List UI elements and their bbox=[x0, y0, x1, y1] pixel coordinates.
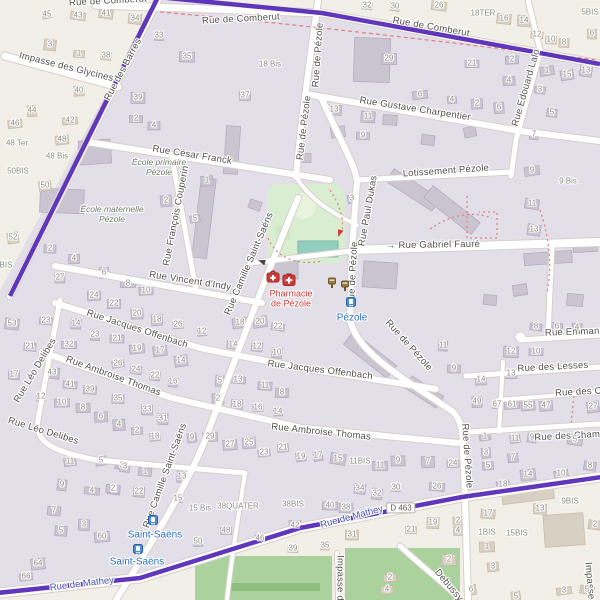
building bbox=[511, 591, 521, 600]
building bbox=[383, 574, 396, 582]
building bbox=[55, 526, 68, 537]
building bbox=[587, 29, 596, 39]
building bbox=[277, 443, 289, 452]
building bbox=[487, 562, 499, 572]
building bbox=[106, 484, 121, 493]
building bbox=[447, 460, 459, 468]
building bbox=[371, 488, 382, 500]
building bbox=[524, 165, 540, 176]
building bbox=[465, 60, 479, 67]
building bbox=[76, 403, 90, 412]
forest-area bbox=[195, 556, 332, 600]
building bbox=[547, 108, 558, 117]
building bbox=[39, 317, 53, 325]
building bbox=[258, 449, 271, 457]
building bbox=[479, 542, 494, 553]
building bbox=[497, 13, 512, 24]
building bbox=[193, 537, 203, 547]
building bbox=[354, 483, 366, 494]
building bbox=[64, 457, 77, 467]
building bbox=[382, 54, 397, 65]
building bbox=[253, 404, 263, 411]
building bbox=[179, 52, 194, 63]
building bbox=[168, 376, 178, 387]
building bbox=[128, 13, 142, 25]
building bbox=[391, 484, 401, 492]
building bbox=[160, 195, 172, 207]
building bbox=[545, 36, 556, 45]
building bbox=[84, 487, 100, 496]
building bbox=[44, 245, 56, 253]
building bbox=[63, 381, 78, 389]
building bbox=[527, 224, 541, 237]
building bbox=[567, 434, 583, 446]
building bbox=[130, 365, 142, 375]
building bbox=[94, 412, 108, 423]
building bbox=[74, 86, 85, 97]
building bbox=[463, 126, 477, 138]
building bbox=[313, 450, 323, 461]
building bbox=[383, 115, 398, 126]
building bbox=[362, 2, 373, 10]
building bbox=[529, 348, 543, 355]
building bbox=[512, 284, 527, 297]
building bbox=[90, 329, 99, 340]
building bbox=[112, 360, 125, 369]
building bbox=[471, 99, 483, 110]
building bbox=[197, 328, 207, 337]
building bbox=[534, 86, 546, 94]
building bbox=[442, 554, 457, 566]
building bbox=[295, 452, 306, 462]
map-canvas[interactable]: Rue de ComberutImpasse des GlycinesRue d… bbox=[0, 0, 600, 600]
building bbox=[429, 482, 445, 491]
building bbox=[431, 1, 447, 12]
building bbox=[131, 309, 143, 319]
building bbox=[527, 433, 537, 443]
building bbox=[242, 437, 256, 449]
building bbox=[107, 299, 120, 308]
building bbox=[47, 506, 61, 516]
building bbox=[524, 198, 539, 210]
building bbox=[133, 487, 145, 498]
building bbox=[509, 434, 520, 443]
building bbox=[258, 382, 272, 391]
building bbox=[503, 76, 515, 86]
building bbox=[139, 287, 153, 296]
building bbox=[113, 419, 126, 431]
building bbox=[503, 346, 519, 358]
building bbox=[482, 462, 494, 471]
building bbox=[27, 105, 37, 117]
building bbox=[362, 261, 398, 289]
building bbox=[438, 341, 448, 352]
building bbox=[273, 408, 282, 416]
building bbox=[539, 400, 553, 411]
building bbox=[38, 180, 51, 192]
building bbox=[583, 461, 596, 472]
map-base-layer bbox=[0, 0, 600, 600]
building bbox=[94, 531, 110, 542]
road bbox=[337, 553, 338, 600]
building bbox=[71, 319, 82, 330]
building bbox=[472, 396, 482, 407]
building bbox=[78, 519, 90, 531]
building bbox=[588, 520, 600, 531]
building bbox=[275, 388, 288, 397]
building bbox=[190, 215, 201, 223]
building bbox=[101, 52, 112, 61]
building bbox=[320, 542, 329, 550]
building bbox=[110, 335, 124, 343]
building bbox=[586, 401, 599, 413]
building bbox=[158, 413, 168, 424]
building bbox=[55, 273, 65, 283]
building bbox=[447, 96, 457, 104]
building bbox=[30, 558, 45, 570]
building bbox=[55, 135, 69, 146]
building bbox=[57, 479, 67, 491]
building bbox=[322, 502, 337, 511]
building bbox=[138, 467, 152, 477]
building bbox=[559, 38, 569, 47]
building bbox=[421, 456, 434, 467]
building bbox=[62, 117, 78, 125]
building bbox=[339, 503, 353, 512]
building bbox=[405, 526, 416, 533]
building bbox=[174, 355, 188, 368]
building bbox=[173, 321, 183, 329]
building bbox=[131, 92, 145, 103]
building bbox=[152, 345, 167, 357]
building bbox=[141, 405, 152, 415]
building bbox=[356, 132, 369, 140]
building bbox=[68, 254, 79, 263]
building bbox=[530, 323, 543, 331]
building bbox=[560, 69, 574, 81]
building bbox=[54, 399, 69, 407]
building bbox=[288, 545, 298, 552]
building bbox=[87, 291, 101, 301]
building bbox=[412, 90, 428, 100]
building bbox=[330, 452, 347, 465]
building bbox=[112, 394, 124, 404]
building bbox=[551, 322, 563, 331]
building bbox=[579, 585, 594, 595]
building bbox=[481, 509, 496, 519]
building bbox=[129, 344, 145, 355]
building bbox=[98, 9, 113, 20]
building bbox=[149, 371, 160, 381]
building bbox=[223, 440, 238, 451]
hedge-row bbox=[230, 583, 320, 591]
building bbox=[494, 102, 505, 114]
building bbox=[148, 122, 160, 130]
building bbox=[391, 456, 405, 466]
building bbox=[505, 56, 518, 64]
building bbox=[19, 573, 33, 582]
building bbox=[381, 585, 394, 594]
building bbox=[43, 39, 56, 51]
building bbox=[131, 427, 143, 435]
building bbox=[481, 448, 491, 459]
building bbox=[42, 11, 52, 19]
building bbox=[421, 134, 435, 146]
building bbox=[521, 401, 536, 411]
building bbox=[251, 342, 263, 352]
building bbox=[130, 116, 143, 123]
building bbox=[4, 318, 19, 331]
building bbox=[453, 517, 463, 525]
building bbox=[8, 119, 23, 128]
building bbox=[24, 342, 37, 351]
building bbox=[220, 527, 231, 534]
building bbox=[427, 517, 439, 528]
building bbox=[151, 314, 163, 326]
building bbox=[572, 323, 583, 333]
building bbox=[187, 433, 197, 443]
building bbox=[8, 370, 20, 380]
building bbox=[150, 432, 161, 441]
building bbox=[447, 365, 460, 373]
building bbox=[373, 462, 388, 471]
building bbox=[567, 293, 584, 306]
building bbox=[7, 232, 20, 245]
building bbox=[390, 2, 400, 11]
building bbox=[154, 31, 163, 40]
building bbox=[201, 175, 214, 186]
building bbox=[346, 530, 359, 540]
building bbox=[508, 453, 519, 463]
building bbox=[361, 111, 376, 123]
building bbox=[539, 66, 554, 77]
building bbox=[453, 526, 462, 535]
building bbox=[272, 348, 283, 359]
building bbox=[483, 294, 497, 305]
building bbox=[533, 504, 547, 515]
building bbox=[73, 50, 85, 58]
building bbox=[520, 469, 536, 482]
building bbox=[543, 513, 585, 548]
building bbox=[61, 341, 76, 348]
building bbox=[83, 386, 97, 395]
building bbox=[239, 91, 250, 100]
